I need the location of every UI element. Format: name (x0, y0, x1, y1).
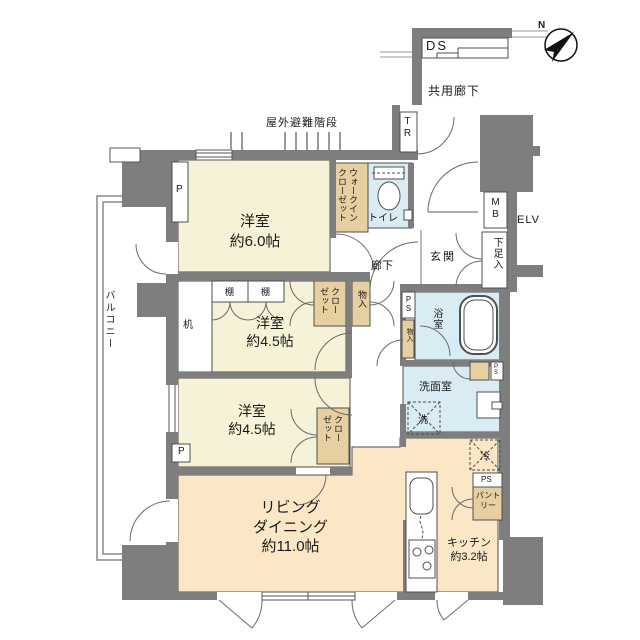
desk-label: 机 (183, 316, 193, 331)
meter-box-label: MB (490, 197, 501, 227)
kitchen-name: キッチン (447, 536, 491, 550)
bedroom-45a-size: 約4.5帖 (246, 332, 293, 350)
north-compass-icon (544, 29, 577, 62)
washer-label: 洗 (418, 411, 428, 426)
bedroom-45b-name: 洋室 (238, 402, 266, 420)
bathroom-label: 浴室 (429, 308, 444, 336)
living-dining-name1: リビング (260, 498, 320, 518)
pipe-space-label-c: PS (481, 475, 492, 484)
common-corridor-label: 共用廊下 (428, 82, 480, 99)
shelf-label-a: 棚 (225, 285, 234, 298)
floor-plan: DS 共用廊下 TR 屋外避難階段 N P 洋室 約6.0帖 ウォークインクロー… (0, 0, 640, 640)
washbasin (477, 392, 502, 418)
bedroom-45a-name: 洋室 (256, 314, 284, 332)
closet-label-a: クローゼット (318, 287, 340, 321)
bathtub (460, 296, 497, 354)
storage-label-b: 物入 (404, 328, 414, 350)
kitchen-size: 約3.2帖 (450, 550, 487, 564)
fridge-label: 冷 (480, 448, 490, 463)
balcony-label: バルコニー (101, 290, 116, 380)
trunk-room-label: TR (402, 116, 413, 150)
pipe-space-label-b: PS (493, 364, 499, 378)
kitchen-label: キッチン 約3.2帖 (430, 536, 508, 565)
shelf-label-b: 棚 (261, 285, 270, 298)
shoe-cabinet-label: 下足入 (489, 237, 504, 285)
compass-north-label: N (538, 20, 545, 31)
storage-label-a: 物入 (356, 290, 369, 316)
bedroom-6-name: 洋室 (240, 212, 270, 232)
bedroom-6-size: 約6.0帖 (230, 232, 281, 252)
toilet-label: トイレ (368, 209, 398, 224)
hallway-label: 廊下 (371, 257, 393, 273)
pipe-label-a: P (176, 184, 183, 195)
bedroom-6-label: 洋室 約6.0帖 (190, 212, 320, 251)
stair-ticks (231, 132, 340, 150)
pipe-space-label-a: PS (404, 295, 413, 315)
walk-in-closet-label: ウォークインクローゼット (336, 168, 358, 228)
living-dining-name2: ダイニング (253, 518, 328, 538)
living-dining-size: 約11.0帖 (261, 537, 319, 557)
entrance-label: 玄関 (430, 248, 456, 264)
pipe-label-b: P (178, 446, 185, 457)
bedroom-45b-size: 約4.5帖 (228, 420, 275, 438)
living-dining-label: リビング ダイニング 約11.0帖 (213, 498, 368, 557)
washroom-label: 洗面室 (419, 378, 452, 394)
kitchen-counter (406, 472, 437, 592)
elevator-label: ELV (517, 214, 540, 226)
bedroom-45b-label: 洋室 約4.5帖 (186, 402, 318, 438)
duct-space-label: DS (426, 38, 448, 53)
pantry-label: パントリー (475, 491, 501, 512)
closet-label-b: クローゼット (321, 415, 343, 449)
evacuation-stairs-label: 屋外避難階段 (266, 114, 338, 130)
